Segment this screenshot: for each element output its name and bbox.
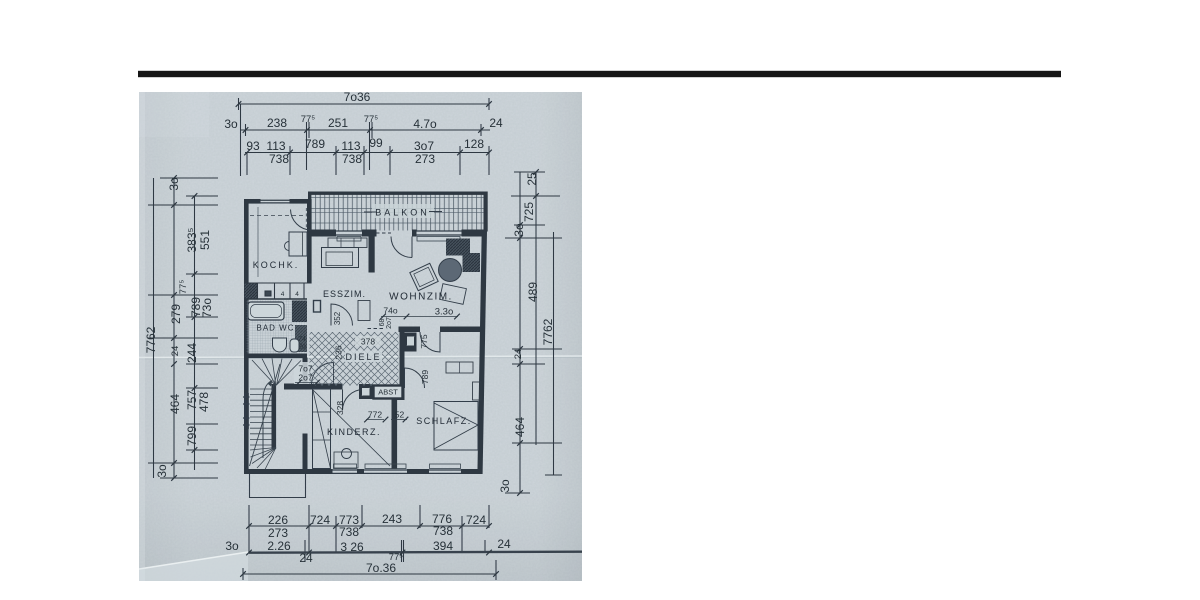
svg-text:328: 328 [335, 401, 345, 415]
svg-text:383⁵: 383⁵ [185, 227, 199, 252]
svg-text:725: 725 [522, 202, 536, 222]
svg-text:7762: 7762 [541, 318, 555, 345]
svg-text:3 26: 3 26 [340, 540, 364, 554]
svg-text:74: 74 [298, 336, 306, 343]
svg-text:3.3o: 3.3o [435, 307, 454, 318]
svg-text:99: 99 [369, 136, 383, 150]
svg-text:3o7: 3o7 [414, 139, 434, 153]
svg-text:789: 789 [420, 370, 430, 384]
svg-text:3o: 3o [498, 479, 512, 493]
svg-text:251: 251 [328, 116, 348, 130]
svg-text:BAD WC: BAD WC [257, 324, 295, 333]
svg-text:113: 113 [266, 139, 285, 153]
svg-text:352: 352 [333, 311, 342, 325]
svg-text:238: 238 [267, 116, 287, 130]
svg-text:128: 128 [464, 137, 484, 151]
svg-text:464: 464 [168, 394, 182, 414]
svg-text:7o36: 7o36 [344, 90, 371, 104]
svg-text:2o: 2o [298, 344, 306, 351]
svg-text:KINDERZ.: KINDERZ. [327, 427, 381, 437]
svg-text:25: 25 [525, 172, 539, 186]
svg-text:WOHNZIM.: WOHNZIM. [389, 292, 453, 303]
svg-text:77⁵: 77⁵ [364, 114, 379, 125]
svg-text:3o: 3o [167, 177, 181, 191]
svg-text:73o: 73o [200, 298, 214, 318]
svg-text:724: 724 [310, 513, 330, 527]
svg-text:489: 489 [526, 282, 540, 302]
svg-text:7762: 7762 [144, 326, 158, 353]
svg-text:236: 236 [334, 345, 344, 359]
svg-text:3o: 3o [224, 117, 238, 131]
svg-text:3o: 3o [225, 539, 239, 553]
svg-text:ABST: ABST [378, 388, 398, 397]
svg-text:24: 24 [489, 116, 503, 130]
svg-text:772: 772 [368, 410, 382, 420]
svg-text:3o: 3o [155, 464, 169, 478]
svg-text:738: 738 [342, 152, 362, 166]
svg-text:378: 378 [361, 337, 375, 347]
svg-text:551: 551 [198, 230, 212, 250]
svg-text:4.7o: 4.7o [413, 117, 437, 131]
svg-text:24: 24 [497, 537, 511, 551]
svg-text:799: 799 [185, 426, 199, 446]
svg-text:2.26: 2.26 [267, 539, 291, 553]
svg-text:738: 738 [433, 524, 453, 538]
svg-text:4: 4 [281, 291, 285, 298]
svg-text:113: 113 [341, 139, 360, 153]
svg-text:2o7: 2o7 [386, 317, 393, 329]
svg-text:464: 464 [513, 417, 527, 437]
svg-text:24: 24 [299, 551, 313, 565]
svg-text:279: 279 [169, 304, 183, 324]
svg-text:BALKON: BALKON [375, 208, 430, 218]
svg-text:789: 789 [305, 137, 325, 151]
svg-text:KOCHK.: KOCHK. [253, 260, 300, 270]
svg-text:DIELE: DIELE [345, 352, 381, 362]
svg-text:77⁵: 77⁵ [301, 114, 316, 125]
svg-text:478: 478 [197, 392, 211, 412]
svg-text:77⁵: 77⁵ [178, 280, 189, 295]
svg-text:3o: 3o [512, 223, 526, 237]
svg-text:775: 775 [419, 334, 429, 348]
svg-text:243: 243 [382, 512, 402, 526]
svg-text:244: 244 [185, 343, 199, 363]
svg-text:4: 4 [295, 291, 299, 298]
svg-text:24: 24 [170, 346, 181, 357]
svg-text:394: 394 [433, 539, 453, 553]
svg-text:724: 724 [466, 513, 486, 527]
svg-text:273: 273 [268, 526, 288, 540]
svg-text:738: 738 [339, 525, 359, 539]
svg-text:7o.36: 7o.36 [366, 561, 396, 575]
svg-text:ESSZIM.: ESSZIM. [323, 289, 366, 299]
svg-text:226: 226 [268, 513, 288, 527]
svg-text:SCHLAFZ.: SCHLAFZ. [416, 416, 472, 426]
svg-text:273: 273 [415, 152, 435, 166]
svg-text:738: 738 [269, 152, 289, 166]
svg-text:24: 24 [513, 349, 524, 360]
svg-text:68: 68 [379, 319, 386, 327]
svg-text:52: 52 [395, 410, 405, 420]
svg-text:93: 93 [246, 139, 260, 153]
